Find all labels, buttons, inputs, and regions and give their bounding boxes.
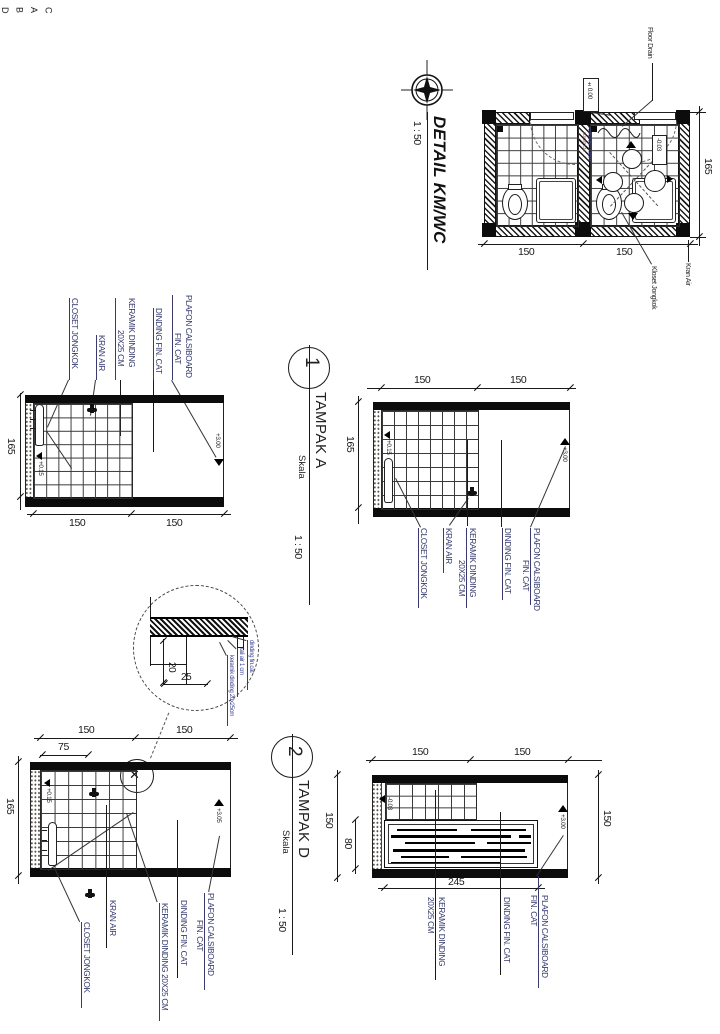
tampak-d-scale: 1 : 50 — [276, 908, 288, 932]
td-plafon-label-1: PLAFON CALSIBOARD — [540, 895, 549, 978]
td-door-panel — [384, 820, 538, 868]
tampak-d-number: 2 — [283, 746, 305, 757]
drawing-sheet: 1 : 50 DETAIL KM/WC — [0, 0, 720, 1034]
td-dim-150-top-left: 150 — [412, 746, 428, 758]
tampak-d-skala-label: Skala — [280, 830, 291, 854]
td-keramik-label-2: 20X25 CM — [426, 897, 435, 933]
td-floor-level: -0.03 — [386, 797, 393, 810]
td-ceiling-level-marker — [558, 805, 568, 812]
td-plafon-label-2: FIN. CAT — [529, 895, 538, 926]
td-dim-80: 80 — [342, 838, 354, 849]
td-dinding-label: DINDING FIN. CAT — [502, 897, 511, 963]
td-keramik-label-1: KERAMIK DINDING — [437, 897, 446, 966]
td-wall-tiles — [385, 783, 477, 820]
td-ceiling-level: +3.00 — [559, 814, 566, 829]
tampak-d-view: 2 TAMPAK D Skala 1 : 50 150 150 150 80 — [0, 0, 720, 1034]
td-dim-150-top-right: 150 — [514, 746, 530, 758]
td-dim-150-left: 150 — [323, 812, 335, 828]
tampak-d-title: TAMPAK D — [295, 780, 312, 858]
td-dim-150-right: 150 — [601, 810, 613, 826]
td-floor-level-marker — [379, 795, 385, 803]
